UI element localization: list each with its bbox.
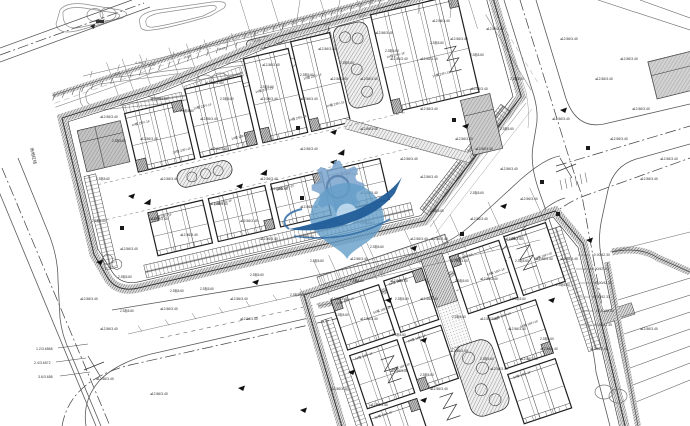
svg-text:2.3标5.60: 2.3标5.60 [500,126,514,131]
svg-text:◂12.56/3.40: ◂12.56/3.40 [450,349,468,353]
svg-text:◂12.56/3.40: ◂12.56/3.40 [430,387,448,391]
svg-text:◂12.56/3.40: ◂12.56/3.40 [420,107,438,111]
svg-text:3.6/3.658: 3.6/3.658 [38,375,53,379]
svg-text:±0.00/42.35: ±0.00/42.35 [594,323,612,327]
svg-text:2.3标5.60: 2.3标5.60 [556,282,570,287]
svg-text:2.3标5.60: 2.3标5.60 [420,372,434,377]
svg-text:±0.00/42.34: ±0.00/42.34 [596,309,614,313]
svg-text:2.3标5.60: 2.3标5.60 [452,314,466,319]
svg-text:◂12.56/3.40: ◂12.56/3.40 [552,117,570,121]
svg-text:◂12.56/3.40: ◂12.56/3.40 [150,392,168,396]
svg-text:◂12.56/3.40: ◂12.56/3.40 [300,97,318,101]
svg-text:◂12.56/3.40: ◂12.56/3.40 [400,157,418,161]
svg-text:◂12.56/3.40: ◂12.56/3.40 [390,57,408,61]
svg-text:2.3标5.60: 2.3标5.60 [92,218,106,223]
svg-text:2.3标5.60: 2.3标5.60 [260,84,274,89]
svg-text:2.3标5.60: 2.3标5.60 [510,76,524,81]
svg-text:◂12.56/3.40: ◂12.56/3.40 [432,19,450,23]
svg-text:◂12.56/3.40: ◂12.56/3.40 [505,237,523,241]
svg-text:±0.00/42.31: ±0.00/42.31 [590,267,608,271]
svg-text:◂12.56/3.40: ◂12.56/3.40 [508,327,526,331]
svg-text:◂12.56/3.40: ◂12.56/3.40 [270,187,288,191]
svg-text:2.3标5.60: 2.3标5.60 [290,292,304,297]
svg-text:◂12.56/3.40: ◂12.56/3.40 [490,367,508,371]
svg-text:◂12.56/3.40: ◂12.56/3.40 [520,197,538,201]
svg-text:◂12.56/3.40: ◂12.56/3.40 [595,77,613,81]
svg-text:◂12.56/3.40: ◂12.56/3.40 [120,247,138,251]
svg-text:2.3标5.60: 2.3标5.60 [470,190,484,195]
svg-text:◂12.56/3.40: ◂12.56/3.40 [420,57,438,61]
svg-text:2.3标5.60: 2.3标5.60 [392,332,406,337]
svg-text:◂12.56/3.40: ◂12.56/3.40 [330,387,348,391]
svg-text:±0.00/42.33: ±0.00/42.33 [592,295,610,299]
svg-text:◂12.56/3.40: ◂12.56/3.40 [620,57,638,61]
svg-text:◂12.56/3.40: ◂12.56/3.40 [350,257,368,261]
svg-text:◂12.56/3.40: ◂12.56/3.40 [640,327,658,331]
svg-text:◂12.56/3.40: ◂12.56/3.40 [370,403,388,407]
svg-text:2.3标5.60: 2.3标5.60 [430,208,444,213]
svg-text:◂12.56/3.40: ◂12.56/3.40 [520,357,538,361]
svg-text:2.3标5.60: 2.3标5.60 [180,108,194,113]
svg-text:2.3标5.60: 2.3标5.60 [455,278,469,283]
svg-text:◂12.56/3.40: ◂12.56/3.40 [455,137,473,141]
svg-text:◂12.56/3.40: ◂12.56/3.40 [535,257,553,261]
svg-text:2.3标5.60: 2.3标5.60 [385,48,399,53]
svg-text:2.3标5.60: 2.3标5.60 [540,336,554,341]
svg-text:◂12.56/3.40: ◂12.56/3.40 [260,97,278,101]
svg-text:◂12.56/3.40: ◂12.56/3.40 [480,277,498,281]
svg-text:◂12.56/3.40: ◂12.56/3.40 [450,259,468,263]
svg-text:◂12.56/3.40: ◂12.56/3.40 [150,97,168,101]
svg-text:2.3标5.60: 2.3标5.60 [340,60,354,65]
svg-text:◂12.56/3.40: ◂12.56/3.40 [210,147,228,151]
svg-text:◂12.56/3.40: ◂12.56/3.40 [240,219,258,223]
svg-text:◂12.56/3.40: ◂12.56/3.40 [230,297,248,301]
svg-text:◂12.56/3.40: ◂12.56/3.40 [470,87,488,91]
svg-text:±0.00/42.30: ±0.00/42.30 [592,253,610,257]
svg-text:2.3标5.60: 2.3标5.60 [515,258,529,263]
svg-text:◂12.56/3.40: ◂12.56/3.40 [205,81,223,85]
svg-text:◂12.56/3.40: ◂12.56/3.40 [300,147,318,151]
svg-text:◂12.56/3.40: ◂12.56/3.40 [420,175,438,179]
svg-text:2.3标5.60: 2.3标5.60 [250,272,264,277]
svg-text:◂12.56/3.40: ◂12.56/3.40 [330,77,348,81]
svg-text:◂12.56/3.40: ◂12.56/3.40 [100,327,118,331]
svg-text:◂12.56/3.40: ◂12.56/3.40 [560,257,578,261]
svg-text:2.3标5.60: 2.3标5.60 [430,40,444,45]
svg-text:◂12.56/3.40: ◂12.56/3.40 [390,369,408,373]
svg-text:◂12.56/3.40: ◂12.56/3.40 [560,37,578,41]
svg-text:◂12.56/3.40: ◂12.56/3.40 [160,177,178,181]
svg-text:◂12.56/3.40: ◂12.56/3.40 [150,217,168,221]
svg-text:1.2/3.6568: 1.2/3.6568 [36,347,53,351]
svg-text:◂12.56/3.40: ◂12.56/3.40 [410,237,428,241]
svg-text:◂12.56/3.40: ◂12.56/3.40 [262,63,280,67]
svg-text:◂12.56/3.40: ◂12.56/3.40 [420,297,438,301]
svg-text:2.3标5.60: 2.3标5.60 [112,138,126,143]
svg-text:◂12.56/3.40: ◂12.56/3.40 [240,317,258,321]
svg-text:2.3标5.60: 2.3标5.60 [470,52,484,57]
svg-text:◂12.56/3.40: ◂12.56/3.40 [140,137,158,141]
svg-text:◂12.56/3.40: ◂12.56/3.40 [660,157,678,161]
svg-text:±0.00/42.32: ±0.00/42.32 [594,281,612,285]
svg-text:2.3标5.60: 2.3标5.60 [120,308,134,313]
svg-text:◂12.56/3.40: ◂12.56/3.40 [470,217,488,221]
svg-text:2.4/3.6572: 2.4/3.6572 [34,361,51,365]
svg-text:◂12.56/3.40: ◂12.56/3.40 [160,307,178,311]
svg-text:2.3标5.60: 2.3标5.60 [335,312,349,317]
svg-text:◂12.56/3.40: ◂12.56/3.40 [360,127,378,131]
svg-text:◂12.56/3.40: ◂12.56/3.40 [632,107,650,111]
svg-text:2.3标5.60: 2.3标5.60 [200,286,214,291]
svg-text:◂12.56/3.40: ◂12.56/3.40 [450,37,468,41]
svg-text:◂12.56/3.40: ◂12.56/3.40 [210,202,228,206]
svg-text:◂12.56/3.40: ◂12.56/3.40 [375,31,393,35]
svg-text:◂12.56/3.40: ◂12.56/3.40 [318,47,336,51]
svg-text:2.3标5.60: 2.3标5.60 [220,96,234,101]
svg-text:◂12.56/3.40: ◂12.56/3.40 [540,347,558,351]
svg-text:◂12.56/3.40: ◂12.56/3.40 [590,347,608,351]
svg-text:◂12.56/3.40: ◂12.56/3.40 [80,297,98,301]
svg-text:◂12.56/3.40: ◂12.56/3.40 [260,177,278,181]
svg-text:2.3标5.60: 2.3标5.60 [480,356,494,361]
svg-text:2.3标5.60: 2.3标5.60 [512,296,526,301]
svg-text:◂12.56/3.40: ◂12.56/3.40 [475,147,493,151]
svg-text:◂12.56/3.40: ◂12.56/3.40 [180,233,198,237]
svg-text:◂12.56/3.40: ◂12.56/3.40 [390,279,408,283]
svg-text:◂12.56/3.40: ◂12.56/3.40 [500,167,518,171]
svg-text:2.3标5.60: 2.3标5.60 [118,274,132,279]
svg-text:2.3标5.60: 2.3标5.60 [350,278,364,283]
svg-text:◂12.56/3.40: ◂12.56/3.40 [100,115,118,119]
svg-text:◂12.56/3.40: ◂12.56/3.40 [480,317,498,321]
svg-text:◂12.56/3.40: ◂12.56/3.40 [640,177,658,181]
svg-text:◂12.56/3.40: ◂12.56/3.40 [360,317,378,321]
svg-text:2.3标5.60: 2.3标5.60 [310,258,324,263]
svg-text:◂12.56/3.40: ◂12.56/3.40 [430,237,448,241]
svg-text:◂12.56/3.40: ◂12.56/3.40 [330,297,348,301]
svg-text:◂12.56/3.40: ◂12.56/3.40 [360,77,378,81]
svg-text:◂12.56/3.40: ◂12.56/3.40 [610,137,628,141]
svg-text:◂12.56/3.40: ◂12.56/3.40 [200,117,218,121]
svg-text:2.3标5.60: 2.3标5.60 [170,288,184,293]
svg-text:◂12.56/3.40: ◂12.56/3.40 [486,27,504,31]
svg-text:2.3标5.60: 2.3标5.60 [96,176,110,181]
svg-text:2.3标5.60: 2.3标5.60 [395,296,409,301]
svg-text:◂12.56/3.40: ◂12.56/3.40 [96,377,114,381]
svg-text:2.3标5.60: 2.3标5.60 [370,244,384,249]
svg-text:◂12.56/3.40: ◂12.56/3.40 [260,237,278,241]
svg-text:2.3标5.60: 2.3标5.60 [300,72,314,77]
